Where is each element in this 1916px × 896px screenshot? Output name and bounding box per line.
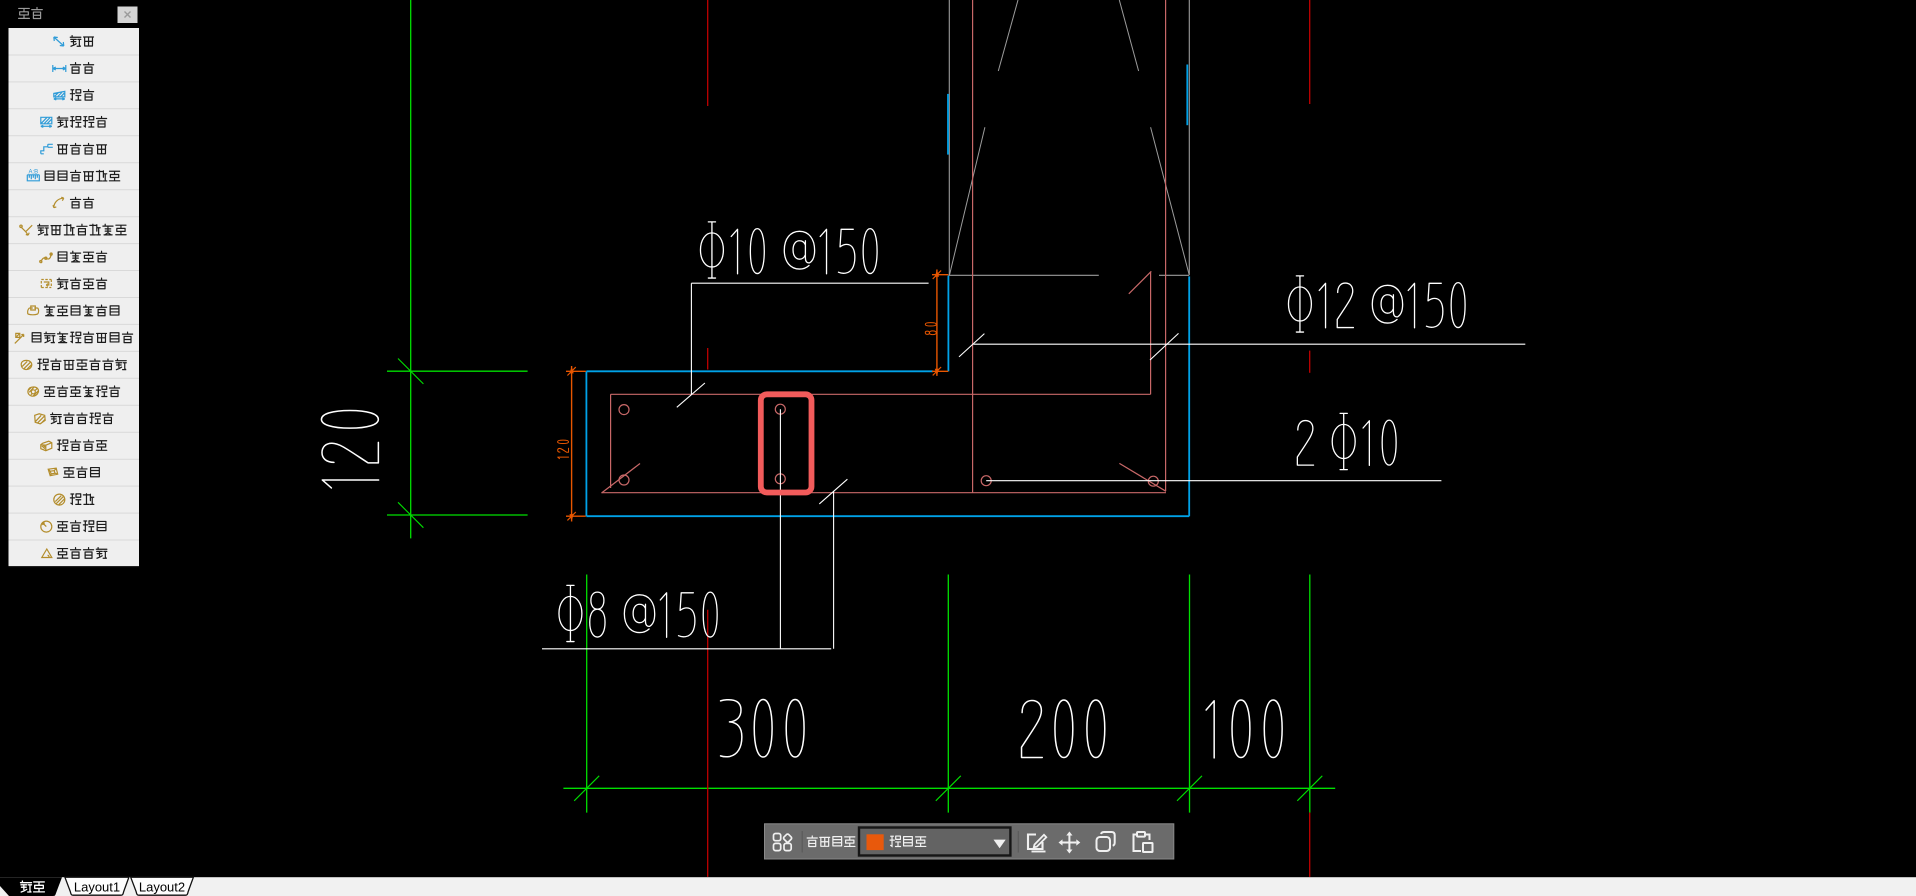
svg-text:A:B: A:B [28, 169, 38, 175]
svg-text:Layout2: Layout2 [139, 880, 185, 895]
svg-text:Layout1: Layout1 [74, 880, 120, 895]
